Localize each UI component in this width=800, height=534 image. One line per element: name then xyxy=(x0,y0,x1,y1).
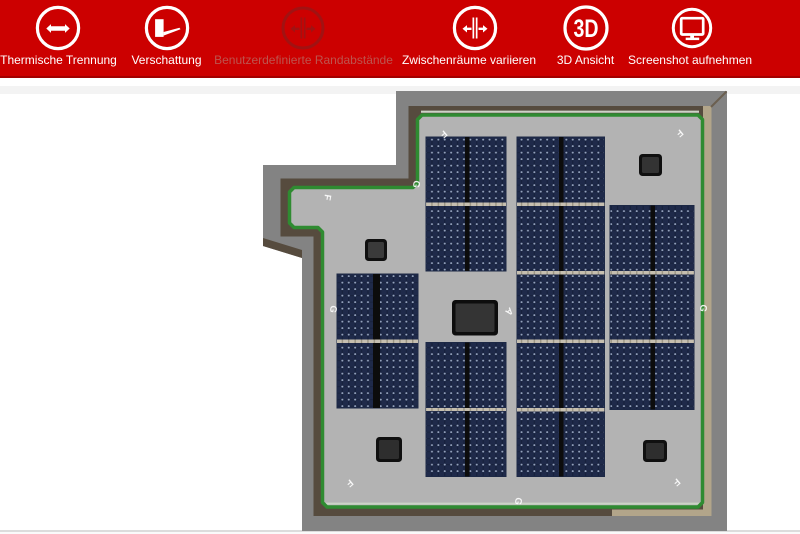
svg-text:3D: 3D xyxy=(573,15,598,43)
